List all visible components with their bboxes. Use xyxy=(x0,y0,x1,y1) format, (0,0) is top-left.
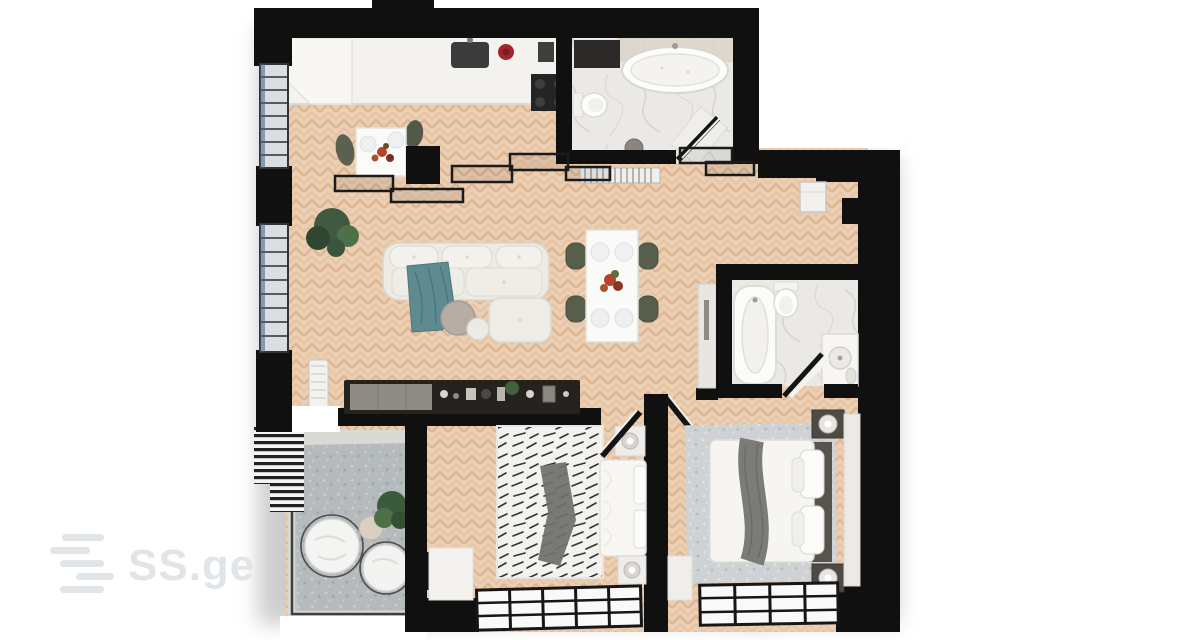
wall xyxy=(556,34,572,164)
toilet xyxy=(774,282,798,317)
toilet xyxy=(573,93,607,117)
coffee-table-small xyxy=(467,318,489,340)
pillow xyxy=(634,510,646,548)
bed xyxy=(710,440,824,562)
pillow xyxy=(792,512,804,546)
floor-plan-render: SS.ge xyxy=(0,0,1200,640)
dining-chair xyxy=(638,243,658,269)
watermark: SS.ge xyxy=(50,534,255,593)
place-setting xyxy=(591,309,609,327)
room-bathroom-side xyxy=(698,264,868,398)
mask-top-right xyxy=(759,0,904,148)
pergola-louvers xyxy=(270,458,304,512)
screenshot-canvas: SS.ge xyxy=(0,0,1200,640)
plate xyxy=(388,132,404,148)
left-window xyxy=(260,64,288,168)
entry-wall-shelf xyxy=(800,182,826,212)
plate xyxy=(360,136,376,152)
wardrobe xyxy=(844,414,860,586)
lounge-chair xyxy=(360,542,412,594)
mask-below-balcony xyxy=(280,616,426,640)
nightstand xyxy=(812,410,844,438)
kitchen-sink xyxy=(451,42,489,68)
watermark-text: SS.ge xyxy=(128,541,255,590)
dining-chair xyxy=(638,296,658,322)
wardrobe-handle xyxy=(704,300,709,340)
place-setting xyxy=(615,309,633,327)
built-in-tub xyxy=(734,286,776,384)
tub-faucet xyxy=(672,43,678,49)
counter-plant xyxy=(538,42,554,62)
dining-chair xyxy=(566,243,586,269)
tub-faucet xyxy=(753,298,758,303)
left-window xyxy=(260,224,288,352)
place-setting xyxy=(591,243,609,261)
black-bench xyxy=(406,146,440,184)
curtain xyxy=(429,548,473,600)
place-setting xyxy=(615,243,633,261)
cabinet xyxy=(668,556,692,600)
wall xyxy=(733,34,759,164)
nightstand xyxy=(618,556,646,584)
bed xyxy=(600,460,646,556)
media-console xyxy=(344,380,580,414)
ss-ge-logo-icon xyxy=(50,534,114,593)
window xyxy=(700,583,839,625)
window xyxy=(477,586,642,630)
pillow xyxy=(634,466,646,504)
kettle-lid xyxy=(503,49,510,56)
pillow xyxy=(792,458,804,492)
wall xyxy=(556,150,676,164)
mirror xyxy=(846,368,856,384)
mirror-niche xyxy=(574,40,620,68)
dining-chair xyxy=(566,296,586,322)
lounge-chair xyxy=(301,515,363,577)
radiator xyxy=(309,360,328,408)
